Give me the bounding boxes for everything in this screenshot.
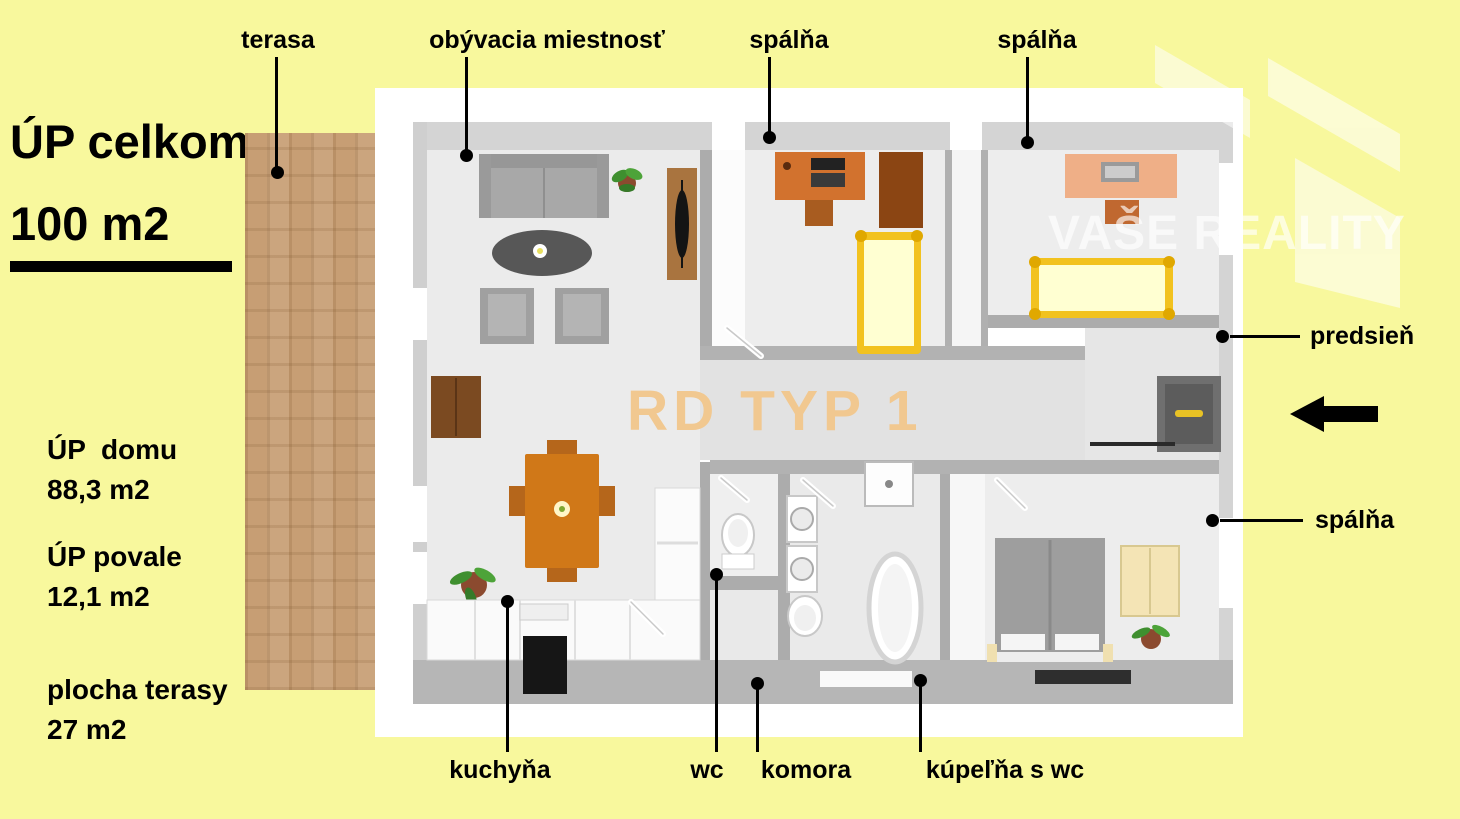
label-predsien: predsieň xyxy=(1310,322,1414,351)
wall-left xyxy=(413,122,427,704)
stat-attic-label: ÚP povale xyxy=(47,537,182,577)
label-spalna-1: spálňa xyxy=(749,26,828,55)
rug xyxy=(492,230,592,276)
stat-attic-value: 12,1 m2 xyxy=(47,577,150,617)
toilet-wc xyxy=(722,514,754,569)
label-kupelna: kúpeľňa s wc xyxy=(926,756,1084,785)
label-wc: wc xyxy=(690,756,723,785)
window-kitchen-2 xyxy=(413,552,427,604)
leader-spalna-2 xyxy=(1026,57,1029,141)
leader-spalna-3 xyxy=(1220,519,1303,522)
entrance-door xyxy=(1157,376,1221,452)
armchair-2 xyxy=(555,288,609,344)
wall-bedroom2-left xyxy=(981,150,988,358)
desk-bedroom1 xyxy=(775,152,865,200)
wall-hallway-bottom xyxy=(710,460,1219,474)
stat-terrace-value: 27 m2 xyxy=(47,710,126,750)
label-komora: komora xyxy=(761,756,851,785)
stat-house-value: 88,3 m2 xyxy=(47,470,150,510)
bed-bedroom3 xyxy=(987,534,1113,662)
label-spalna-2: spálňa xyxy=(997,26,1076,55)
toilet-bathroom xyxy=(788,596,822,636)
wall-bedroom1-right xyxy=(945,150,952,358)
leader-spalna-1 xyxy=(768,57,771,137)
total-area-title: ÚP celkom xyxy=(10,114,249,169)
leader-dot-terasa xyxy=(271,166,284,179)
wall-kitchen-wc xyxy=(700,462,710,660)
shower xyxy=(865,462,913,506)
wall-bathroom-right xyxy=(940,474,950,660)
leader-komora xyxy=(756,686,759,752)
rug-bedroom3 xyxy=(1035,670,1131,684)
tv-stand xyxy=(667,168,697,280)
stat-terrace-label: plocha terasy xyxy=(47,670,228,710)
leader-predsien xyxy=(1230,335,1300,338)
window-top-1 xyxy=(712,122,745,150)
bed-bedroom1 xyxy=(855,230,923,354)
leader-dot-spalna-3 xyxy=(1206,514,1219,527)
leader-dot-kuchyna xyxy=(501,595,514,608)
label-terasa: terasa xyxy=(241,26,315,55)
stove xyxy=(523,636,567,694)
label-spalna-3: spálňa xyxy=(1315,506,1394,535)
armchair-1 xyxy=(480,288,534,344)
fridge xyxy=(655,488,700,600)
leader-obyvacia xyxy=(465,57,468,155)
wall-gap-bathroom-bedroom3 xyxy=(950,474,985,660)
chair-bedroom1 xyxy=(805,200,833,226)
wall-living-bedroom1 xyxy=(700,150,712,358)
entrance-arrow-icon xyxy=(1290,396,1380,432)
brand-watermark: VAŠE REALITY xyxy=(1048,206,1408,261)
terrace xyxy=(245,133,375,690)
leader-dot-spalna-1 xyxy=(763,131,776,144)
leader-dot-komora xyxy=(751,677,764,690)
window-kitchen-1 xyxy=(413,486,427,542)
plan-code-watermark: RD TYP 1 xyxy=(627,378,987,444)
wardrobe-bedroom1 xyxy=(879,152,923,228)
leader-dot-spalna-2 xyxy=(1021,136,1034,149)
doormat xyxy=(1090,442,1175,446)
leader-kupelna xyxy=(919,683,922,752)
leader-dot-obyvacia xyxy=(460,149,473,162)
leader-wc xyxy=(715,577,718,752)
bath-mat xyxy=(820,671,912,687)
label-obyvacia-miestnost: obývacia miestnosť xyxy=(429,26,665,55)
leader-dot-predsien xyxy=(1216,330,1229,343)
bathtub xyxy=(869,554,921,662)
leader-dot-kupelna xyxy=(914,674,927,687)
sofa xyxy=(479,154,609,218)
cabinet-living xyxy=(431,376,481,438)
leader-dot-wc xyxy=(710,568,723,581)
window-bedroom3 xyxy=(1219,518,1233,608)
leader-kuchyna xyxy=(506,605,509,752)
window-top-2 xyxy=(950,122,982,150)
total-area-value: 100 m2 xyxy=(10,196,169,251)
title-underline xyxy=(10,261,232,272)
brand-logo-icon xyxy=(1100,30,1460,320)
leader-terasa xyxy=(275,57,278,170)
floor-plan-poster: ÚP celkom 100 m2 ÚP domu 88,3 m2 ÚP pova… xyxy=(0,0,1460,819)
wardrobe-bedroom3 xyxy=(1121,546,1179,616)
window-living xyxy=(413,288,427,340)
label-kuchyna: kuchyňa xyxy=(449,756,550,785)
pantry-floor xyxy=(710,590,778,660)
stat-house-label: ÚP domu xyxy=(47,430,177,470)
